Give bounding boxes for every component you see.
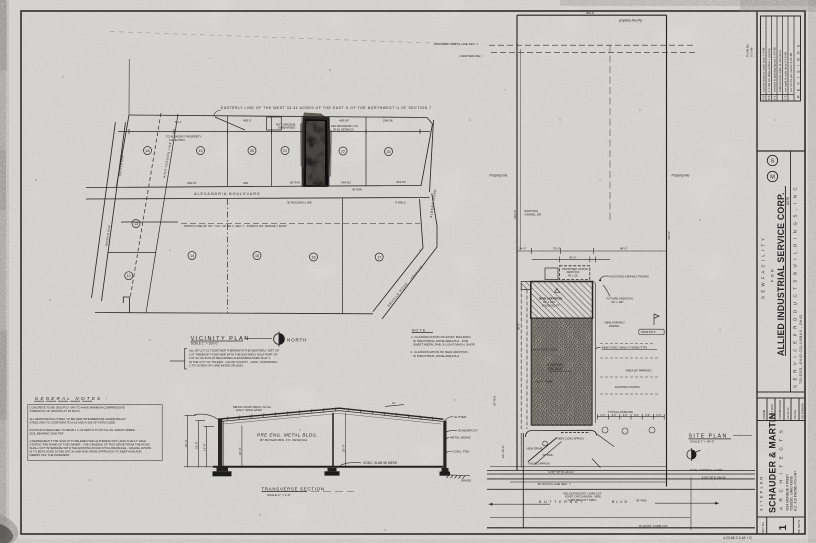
- svg-text:COMMISSION: COMMISSION: [778, 400, 782, 419]
- svg-text:GUTTER: GUTTER: [454, 415, 467, 419]
- svg-text:30' BUILDING LINE: 30' BUILDING LINE: [287, 201, 312, 205]
- svg-text:STRENGTH OF 3000 PSI AT 28: STRENGTH OF 3000 PSI AT 28 DAYS.: [30, 409, 81, 413]
- svg-text:BY BUTLER MFG. CO. OR EQU: BY BUTLER MFG. CO. OR EQUAL: [260, 438, 308, 442]
- svg-text:400.0': 400.0': [243, 118, 252, 122]
- svg-text:310'-0": 310'-0": [513, 210, 517, 219]
- svg-text:EXISTING ASPHALT PAVING: EXISTING ASPHALT PAVING: [611, 274, 650, 278]
- svg-text:property line (N): property line (N): [618, 19, 642, 23]
- svg-text:40' R/W: 40' R/W: [352, 188, 362, 192]
- svg-text:96'-0": 96'-0": [620, 247, 627, 251]
- svg-text:DEBRIS OFF THE PAVEMENT.: DEBRIS OFF THE PAVEMENT.: [30, 453, 71, 457]
- svg-text:TOLEDO, OHIO: TOLEDO, OHIO COLUMBUS , OHIO: [799, 314, 803, 384]
- svg-text:N 89° 58' W 244.11': N 89° 58' W 244.11': [548, 470, 575, 474]
- svg-text:ALLIED INDUSTRIAL SERVICE C: ALLIED INDUSTRIAL SERVICE CORP.: [776, 192, 786, 356]
- svg-text:SCALE: SCALE: [793, 409, 797, 419]
- svg-text:17: 17: [377, 256, 381, 260]
- svg-text:AS SHOWN: AS SHOWN: [800, 403, 804, 419]
- svg-text:75'-0": 75'-0": [553, 247, 560, 251]
- svg-text:added future addn & new d: added future addn & new drive: [778, 50, 782, 92]
- svg-text:EXISTING PAVING: EXISTING PAVING: [615, 385, 641, 389]
- svg-text:DOWNSPOUT: DOWNSPOUT: [458, 429, 478, 433]
- svg-text:12: 12: [392, 401, 396, 405]
- svg-text:CONC. FDN.: CONC. FDN.: [453, 449, 471, 453]
- svg-text:ADDITION: ADDITION: [567, 270, 580, 274]
- svg-text:IS INDUSTRIAL ZONE AREA B-: IS INDUSTRIAL ZONE AREA B-2 .: [413, 354, 461, 358]
- svg-text:BUILDING: BUILDING: [548, 367, 564, 371]
- svg-text:344.50: 344.50: [341, 180, 351, 184]
- svg-text:21'-4": 21'-4": [184, 439, 188, 447]
- svg-text:N E W F A C I L I T Y: N E W F A C I L I T Y: [761, 237, 766, 299]
- svg-text:EXIST. DOCK: EXIST. DOCK: [541, 347, 559, 351]
- svg-text:4-3: 4-3: [762, 95, 766, 100]
- svg-text:SHEET METAL FAB. & LIGHT MA: SHEET METAL FAB. & LIGHT MACH. SHOP.: [413, 343, 476, 347]
- svg-text:A.C. 419 PHONE 473-1447: A.C. 419 PHONE 473-1447: [793, 471, 797, 511]
- svg-text:RADIUS APRON: RADIUS APRON: [529, 461, 550, 465]
- svg-text:40' R/W: 40' R/W: [636, 499, 646, 503]
- svg-text:14'-0": 14'-0": [202, 443, 206, 451]
- svg-text:5-6: 5-6: [767, 95, 771, 100]
- svg-text:2 ELECTRIC: 2 ELECTRIC: [169, 138, 185, 142]
- svg-text:( CENTERLINE ): ( CENTERLINE ): [459, 54, 482, 58]
- svg-text:SCHAUDER & MARTIN: SCHAUDER & MARTIN: [768, 413, 778, 513]
- svg-text:NEW DRIVE: NEW DRIVE: [527, 447, 543, 451]
- svg-text:240.97: 240.97: [187, 181, 197, 185]
- svg-text:9'-0": 9'-0": [634, 414, 639, 417]
- svg-text:S I T E P L A N: S I T E P L A N: [759, 476, 763, 511]
- svg-text:10-31-67: 10-31-67: [786, 407, 790, 419]
- svg-text:25 BL SETBACK: 25 BL SETBACK: [333, 127, 354, 131]
- svg-text:310'-0": 310'-0": [667, 231, 671, 240]
- svg-text:P.O.B. N 89°58' E 137.88: P.O.B. N 89°58' E 137.88: [690, 468, 723, 472]
- svg-text:GRADE: GRADE: [461, 479, 471, 483]
- svg-text:BLVD.: BLVD.: [612, 500, 632, 504]
- svg-text:400: 400: [243, 181, 248, 185]
- svg-text:GENERAL NOTES :: GENERAL NOTES :: [35, 396, 110, 401]
- svg-text:12: 12: [127, 274, 131, 278]
- svg-text:19: 19: [199, 149, 203, 153]
- svg-text:20'-0": 20'-0": [341, 444, 345, 452]
- svg-text:TRANSVERSE SECTION: TRANSVERSE SECTION: [262, 486, 325, 491]
- svg-text:400.00': 400.00': [339, 118, 349, 122]
- svg-text:24'-0": 24'-0": [519, 247, 526, 251]
- svg-text:revised & parking layout 1: revised & parking layout 1-24-68: [773, 47, 777, 92]
- svg-text:9'-0": 9'-0": [645, 414, 650, 417]
- svg-text:A R C H I T E C T S: A R C H I T E C T S: [779, 428, 784, 510]
- svg-text:S E R V I C E P R O D U C: S E R V I C E P R O D U C T S B U I L D …: [793, 186, 798, 388]
- svg-text:R E V I S I O N S: R E V I S I O N S: [796, 43, 800, 98]
- svg-text:Property line: Property line: [672, 174, 690, 178]
- svg-text:6-1: 6-1: [773, 95, 777, 100]
- svg-text:7-2: 7-2: [784, 95, 788, 100]
- svg-text:S 89° 58' E 344.50: S 89° 58' E 344.50: [702, 475, 726, 479]
- svg-text:S-2-68: S-2-68: [750, 47, 754, 57]
- svg-text:344.50: 344.50: [396, 180, 406, 184]
- svg-text:CONC. SLAB W/ MESH: CONC. SLAB W/ MESH: [363, 461, 398, 465]
- svg-text:NOTE : -: NOTE : -: [412, 329, 435, 333]
- svg-text:RAMP DN 6": RAMP DN 6": [641, 330, 656, 334]
- svg-text:1: 1: [777, 525, 789, 531]
- svg-text:EX. 20'-0": EX. 20'-0": [501, 445, 505, 458]
- svg-text:SHT No: SHT No: [761, 522, 765, 533]
- svg-text:SOIL BEARING 2000 PSF.: SOIL BEARING 2000 PSF.: [30, 432, 65, 436]
- svg-text:12,000 SQ FT: 12,000 SQ FT: [542, 304, 560, 308]
- svg-text:No.1: No.1: [175, 120, 182, 124]
- svg-text:ALEXANDRIA BOULEVARD: ALEXANDRIA BOULEVARD: [194, 192, 261, 196]
- svg-text:9'-0": 9'-0": [601, 414, 606, 417]
- svg-text:Property line: Property line: [490, 174, 508, 178]
- svg-text:AREA OF PARKING: AREA OF PARKING: [626, 368, 653, 372]
- svg-text:30' RAD.: 30' RAD.: [542, 453, 553, 457]
- svg-text:GRAVEL DR.: GRAVEL DR.: [525, 212, 542, 216]
- svg-text:23: 23: [387, 150, 391, 154]
- svg-text:SCALE 1" = 100'-0": SCALE 1" = 100'-0": [191, 342, 219, 346]
- svg-text:NEW CONC APRON: NEW CONC APRON: [558, 436, 584, 440]
- svg-text:40' x 25': 40' x 25': [568, 274, 578, 278]
- svg-text:300.0': 300.0': [586, 11, 595, 15]
- svg-text:SCALE 1" = 30'-0": SCALE 1" = 30'-0": [690, 439, 714, 443]
- svg-text:STEEL AND TO CONFORM TO A: STEEL AND TO CONFORM TO A-15 AND A-305 O…: [30, 420, 116, 424]
- svg-text:13: 13: [134, 222, 138, 226]
- svg-text:9'-0": 9'-0": [623, 414, 628, 417]
- svg-text:60' x 100': 60' x 100': [612, 300, 625, 304]
- svg-text:18: 18: [146, 149, 150, 153]
- svg-text:16'-0": 16'-0": [238, 447, 242, 455]
- svg-text:ASSUMED NORTH LINE SEC. 7: ASSUMED NORTH LINE SEC. 7: [434, 42, 478, 46]
- svg-text:OF SHTS: OF SHTS: [797, 520, 801, 533]
- svg-text:GALV. INSULATED: GALV. INSULATED: [236, 408, 263, 412]
- svg-text:DATE: DATE: [786, 197, 790, 205]
- svg-text:SUBDIVIDED: SUBDIVIDED: [278, 126, 295, 130]
- svg-text:4' WALK: 4' WALK: [395, 200, 406, 204]
- svg-text:60' R/W: 60' R/W: [290, 181, 300, 185]
- svg-text:30' SOUTH LINE SEC. 7: 30' SOUTH LINE SEC. 7: [538, 482, 571, 486]
- svg-text:W. EXIST. CURB CUT: W. EXIST. CURB CUT: [639, 524, 668, 528]
- svg-text:rev 12-31 per owner 3-21-6: rev 12-31 per owner 3-21-68: [789, 53, 793, 92]
- svg-text:NORTH LINE OF SO. 7 AC. OF NE: NORTH LINE OF SO. 7 AC. OF NE ¼ SEC 7 . …: [184, 224, 287, 228]
- svg-text:16: 16: [312, 256, 316, 260]
- svg-text:PRE ENG. METAL BLDG.: PRE ENG. METAL BLDG.: [257, 433, 318, 438]
- svg-text:moved dock to north side: moved dock to north side 7-3-68: [762, 47, 766, 92]
- svg-text:CURB PER CITY SPEC.: CURB PER CITY SPEC.: [568, 498, 598, 502]
- svg-text:SCALE ¼" = 1'-0": SCALE ¼" = 1'-0": [267, 493, 291, 497]
- svg-text:15: 15: [255, 254, 259, 258]
- svg-text:9'-0": 9'-0": [612, 414, 617, 417]
- svg-text:42'-0": 42'-0": [569, 255, 576, 259]
- svg-text:NEW CONC. WALK 4' WIDE (TY: NEW CONC. WALK 4' WIDE (TYP): [602, 346, 647, 350]
- svg-text:20: 20: [250, 149, 254, 153]
- svg-text:9'-0": 9'-0": [657, 414, 662, 417]
- svg-text:M: M: [770, 175, 775, 181]
- svg-text:2.757 ACRES OF LAND MORE: 2.757 ACRES OF LAND MORE OR LESS.: [189, 364, 244, 368]
- svg-text:EXIST. RAMP: EXIST. RAMP: [536, 380, 554, 384]
- svg-text:NORTH: NORTH: [287, 337, 307, 342]
- svg-text:S: S: [771, 159, 775, 165]
- svg-text:F O R: F O R: [771, 268, 775, 282]
- svg-text:14: 14: [190, 254, 194, 258]
- svg-text:PAVING: PAVING: [609, 324, 620, 328]
- svg-text:1-7-68 rev bldg outline +: 1-7-68 rev bldg outline + paving: [767, 48, 771, 92]
- svg-text:294.38: 294.38: [383, 119, 393, 123]
- svg-text:60' R/W: 60' R/W: [493, 396, 497, 406]
- svg-text:METAL SIDING: METAL SIDING: [450, 436, 472, 440]
- svg-text:rev walk & curb lines 2-1: rev walk & curb lines 2-14-68: [784, 52, 788, 92]
- svg-text:95'-0": 95'-0": [516, 323, 520, 330]
- svg-text:18'-0": 18'-0": [194, 441, 198, 449]
- svg-text:22: 22: [341, 150, 345, 154]
- svg-text:21: 21: [283, 149, 287, 153]
- svg-text:EASTERLY LINE OF THE WEST: EASTERLY LINE OF THE WEST 33.34 ACRES OF…: [221, 106, 431, 110]
- svg-text:COMM: COMM: [762, 409, 766, 419]
